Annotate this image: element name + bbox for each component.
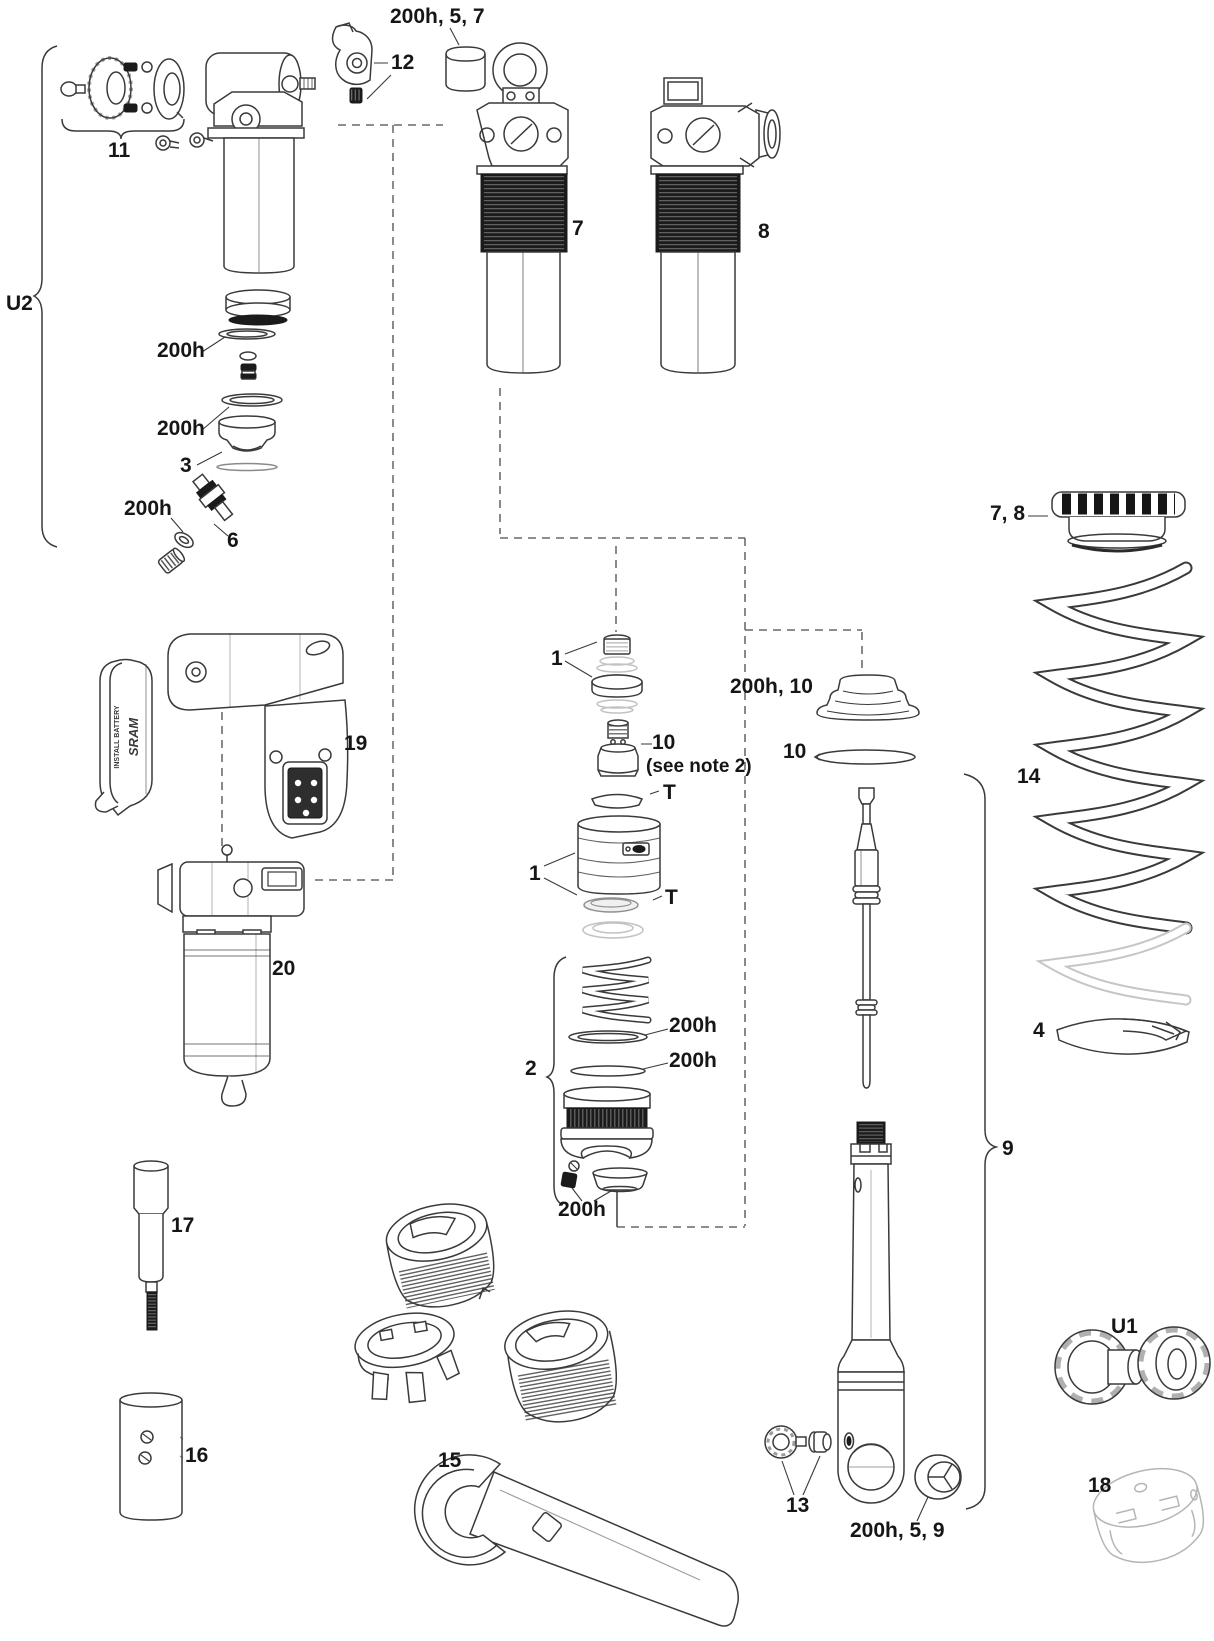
callout-200h-f: 200h [558, 1199, 606, 1220]
upper-damper-assembly [206, 53, 315, 325]
part-19-module: INSTALL BATTERY SRAM [95, 633, 347, 838]
callout-7: 7 [572, 218, 584, 239]
callout-15: 15 [438, 1450, 461, 1471]
threaded-collar-b-ring [351, 1306, 465, 1411]
callout-16: 16 [185, 1445, 208, 1466]
callout-200h-c: 200h [124, 498, 172, 519]
callout-u1: U1 [1111, 1316, 1138, 1337]
group-2-piston [561, 1087, 653, 1158]
group-2-negative-spring [583, 960, 648, 1020]
threaded-collar-c [500, 1303, 624, 1430]
callout-9: 9 [1002, 1138, 1014, 1159]
battery-cover-brand-text: SRAM [126, 717, 141, 756]
part-13-hardware [765, 1426, 831, 1458]
callout-17: 17 [171, 1215, 194, 1236]
callout-bumper-top: 200h, 5, 7 [390, 6, 485, 27]
brace-2 [547, 957, 566, 1205]
threaded-collar-a [381, 1195, 502, 1315]
callout-1-top: 1 [551, 648, 563, 669]
callout-200h-5-9: 200h, 5, 9 [850, 1520, 945, 1541]
callout-11: 11 [108, 140, 130, 161]
diagram-art: INSTALL BATTERY SRAM [0, 0, 1214, 1641]
group-1-canister [578, 816, 660, 894]
small-seal-and-cap [240, 352, 256, 379]
bumper-200h-10 [817, 675, 919, 720]
part-11-mounting-hardware [61, 58, 213, 150]
part-7-shock-body [477, 43, 568, 373]
u1-mounting-nuts [1055, 1327, 1210, 1404]
callout-t-bottom: T [665, 887, 678, 908]
callout-200h-a: 200h [157, 340, 205, 361]
tool-17-shaft-adapter [134, 1161, 168, 1330]
callout-14: 14 [1017, 766, 1040, 787]
bumper-200h-5-7 [446, 47, 485, 91]
thin-washer [217, 464, 277, 471]
brace-9 [964, 774, 996, 1509]
callout-note2: (see note 2) [646, 757, 752, 776]
callout-2: 2 [525, 1058, 537, 1079]
callout-8: 8 [758, 221, 770, 242]
o-ring-200h-c [172, 530, 195, 551]
callout-u2: U2 [6, 293, 33, 314]
callout-200h-e: 200h [669, 1050, 717, 1071]
callout-20: 20 [272, 958, 295, 979]
t-washer-bottom [584, 898, 638, 912]
callout-4: 4 [1033, 1020, 1045, 1041]
eyelet-bushing [915, 1455, 961, 1499]
seal-200h-e [571, 1066, 645, 1076]
coil-spring-14 [1052, 568, 1186, 1000]
seal-200h-d [569, 1031, 647, 1043]
part-16-block [120, 1393, 183, 1520]
callout-200h-b: 200h [157, 418, 205, 439]
ghost-washer [583, 922, 643, 938]
rebound-adjuster-rod [853, 788, 880, 1088]
preload-collar-7-8 [1052, 492, 1185, 551]
callout-6: 6 [227, 530, 239, 551]
part-12-lever [333, 23, 372, 103]
tool-15-wrench [415, 1455, 739, 1626]
part-10-valve-fitting [598, 720, 638, 776]
threaded-plug [157, 547, 186, 574]
callout-19: 19 [344, 733, 367, 754]
callout-1-bottom: 1 [529, 863, 541, 884]
part-4-spring-seat [1057, 1019, 1189, 1054]
callout-18: 18 [1088, 1475, 1111, 1496]
diagram-page: INSTALL BATTERY SRAM [0, 0, 1214, 1641]
callout-200h-10: 200h, 10 [730, 676, 813, 697]
seal-200h-b [222, 394, 282, 406]
washer-10 [815, 750, 915, 764]
group-1-top-stack [592, 635, 642, 713]
damper-shaft-eyelet [838, 1122, 904, 1503]
callout-10-washer: 10 [783, 741, 806, 762]
callout-3: 3 [180, 455, 192, 476]
callout-200h-d: 200h [669, 1015, 717, 1036]
callout-7-8: 7, 8 [990, 503, 1025, 524]
t-washer-top [592, 795, 642, 809]
callout-13: 13 [786, 1495, 809, 1516]
battery-cover-warning-text: INSTALL BATTERY [114, 705, 121, 768]
callout-10: 10 [652, 732, 675, 753]
callout-t-top: T [663, 782, 676, 803]
brace-u2 [34, 46, 57, 547]
seal-200h-a [219, 329, 275, 339]
part-3-piston [219, 416, 275, 451]
callout-12: 12 [391, 52, 414, 73]
part-6-valve [188, 471, 238, 525]
